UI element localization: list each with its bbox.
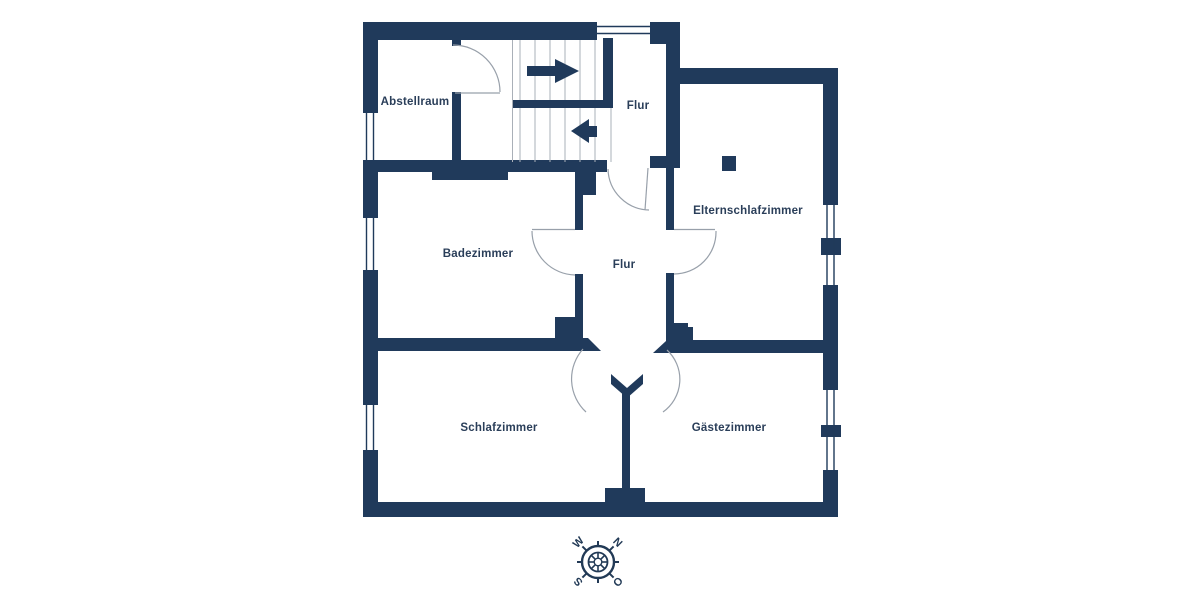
room-label-badezimmer: Badezimmer [443,248,514,260]
room-label-gaestezimmer: Gästezimmer [692,422,767,434]
floor-plan-canvas: Abstellraum Flur Elternschlafzimmer Bade… [0,0,1200,600]
floor-plan: Abstellraum Flur Elternschlafzimmer Bade… [0,0,1200,600]
stair-down-arrow-icon [571,119,597,143]
room-label-abstellraum: Abstellraum [381,96,450,108]
double-door-chevron [611,374,643,398]
chimney-marker [722,156,736,171]
room-label-schlafzimmer: Schlafzimmer [460,422,538,434]
windows [367,27,835,471]
compass-rose-icon: N W O S [571,534,625,589]
room-label-flur-center: Flur [613,259,636,271]
room-label-elternschlafzimmer: Elternschlafzimmer [693,205,803,217]
room-label-flur-top: Flur [627,100,650,112]
